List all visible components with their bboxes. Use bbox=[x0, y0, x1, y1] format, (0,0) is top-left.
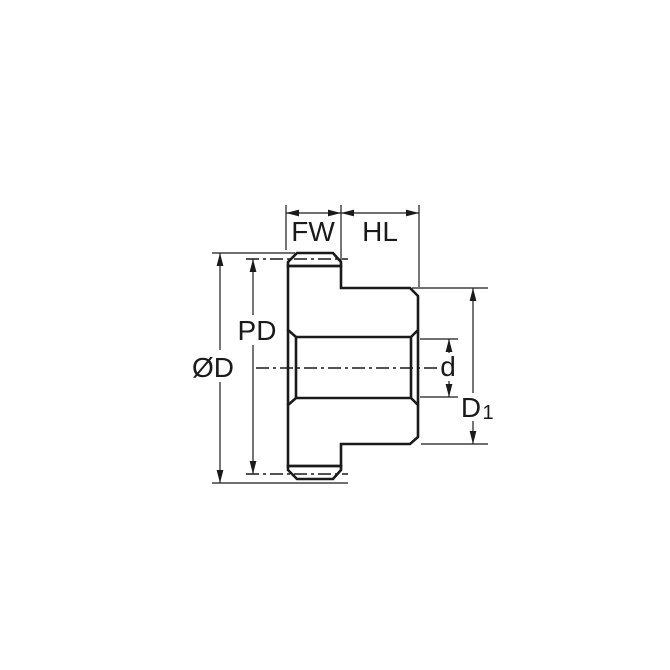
gear-cross-section bbox=[288, 253, 418, 479]
gear-body-lower bbox=[288, 398, 418, 466]
fw-label: FW bbox=[291, 216, 335, 247]
od-label: ØD bbox=[192, 352, 234, 383]
d1-label: D bbox=[461, 392, 481, 423]
d-arrow-down bbox=[446, 384, 453, 397]
hl-label: HL bbox=[362, 216, 398, 247]
pd-label: PD bbox=[238, 315, 277, 346]
pd-arrow-down bbox=[250, 461, 257, 474]
hl-arrow-right bbox=[406, 210, 419, 217]
pd-dimension: PD bbox=[238, 259, 277, 474]
technical-drawing-canvas: FW HL ØD PD d bbox=[0, 0, 670, 670]
d1-label-subscript: 1 bbox=[482, 402, 493, 424]
fw-hl-dimensions: FW HL bbox=[286, 205, 419, 287]
d-label: d bbox=[440, 351, 456, 382]
gear-body-upper bbox=[288, 266, 418, 337]
d1-arrow-down bbox=[470, 431, 477, 444]
bottom-tooth bbox=[288, 466, 341, 479]
od-arrow-down bbox=[217, 470, 224, 483]
pd-arrow-up bbox=[250, 259, 257, 272]
d1-arrow-up bbox=[470, 288, 477, 301]
hl-arrow-left bbox=[341, 210, 354, 217]
od-arrow-up bbox=[217, 253, 224, 266]
gear-dimension-diagram: FW HL ØD PD d bbox=[0, 0, 670, 670]
od-dimension: ØD bbox=[192, 253, 348, 483]
